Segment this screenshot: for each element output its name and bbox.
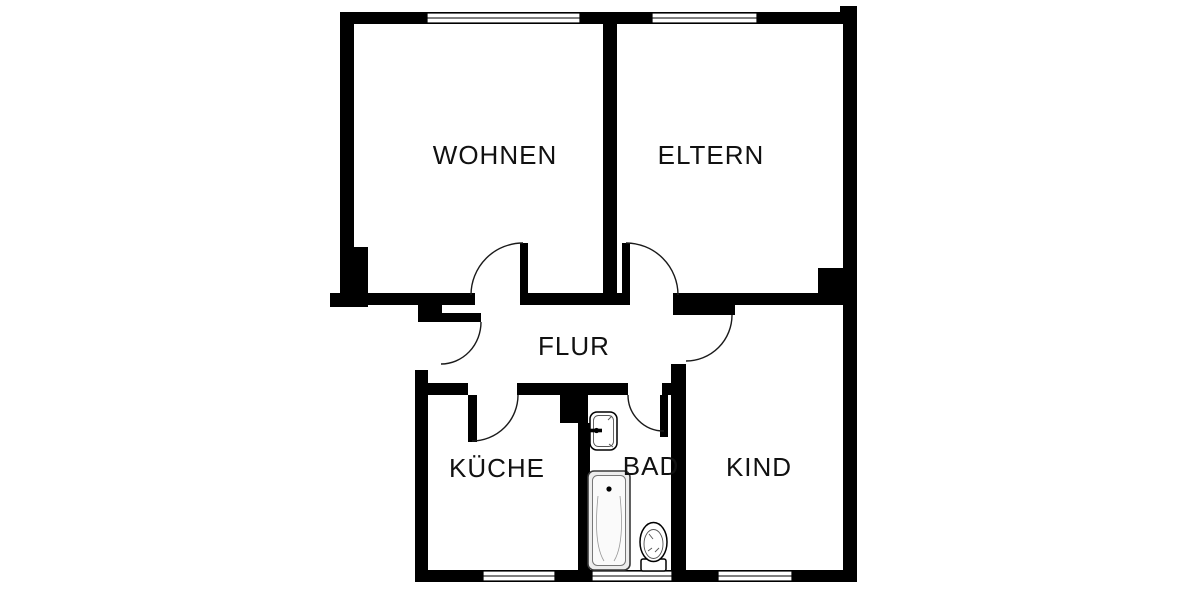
room-label-bad: BAD	[623, 451, 679, 481]
wall-chimney-block	[560, 383, 588, 423]
room-label-kueche: KÜCHE	[449, 453, 545, 483]
door-kind-arc	[686, 315, 732, 361]
door-kueche	[468, 395, 518, 442]
door-eltern-arc	[626, 243, 678, 295]
wall-flur-top-left	[340, 293, 475, 305]
wall-entrance-post	[418, 303, 442, 322]
wall-bad-top-left	[588, 383, 628, 395]
wall-kueche-top-left	[428, 383, 468, 395]
door-eltern-leaf	[622, 243, 630, 295]
wall-flur-top-mid	[520, 293, 630, 305]
window-eltern	[652, 13, 757, 23]
wall-left-lower	[415, 370, 428, 582]
window-wohnen	[427, 13, 580, 23]
wall-wohnen-eltern	[603, 24, 617, 305]
door-bad-arc	[628, 395, 664, 431]
door-kueche-leaf	[468, 395, 477, 442]
wall-flur-kind-stub	[673, 305, 686, 315]
room-label-flur: FLUR	[538, 331, 610, 361]
floorplan-drawing: WOHNEN ELTERN FLUR KÜCHE BAD KIND	[0, 0, 1200, 600]
wall-top	[340, 12, 857, 24]
door-kind	[686, 303, 735, 361]
room-label-wohnen: WOHNEN	[433, 140, 557, 170]
door-eltern	[622, 243, 678, 295]
window-kueche	[483, 571, 555, 581]
door-wohnen-leaf	[520, 243, 528, 295]
window-bad	[592, 571, 672, 581]
door-entrance-leaf	[442, 313, 481, 322]
bathroom-fixtures	[581, 412, 667, 571]
floorplan-canvas: WOHNEN ELTERN FLUR KÜCHE BAD KIND	[0, 0, 1200, 600]
wall-kueche-top-right	[517, 383, 560, 395]
bathtub-icon	[588, 471, 630, 570]
door-entrance	[441, 313, 481, 364]
window-kind	[718, 571, 792, 581]
door-kind-leaf	[686, 303, 735, 315]
room-label-kind: KIND	[726, 452, 792, 482]
door-kueche-arc	[472, 395, 518, 441]
door-bad	[628, 395, 668, 437]
door-entrance-arc	[441, 322, 481, 364]
door-wohnen	[471, 243, 528, 295]
bathtub-drain	[606, 486, 611, 491]
wall-right	[843, 12, 857, 582]
door-wohnen-arc	[471, 243, 523, 295]
room-label-eltern: ELTERN	[658, 140, 765, 170]
toilet-icon	[640, 523, 667, 572]
